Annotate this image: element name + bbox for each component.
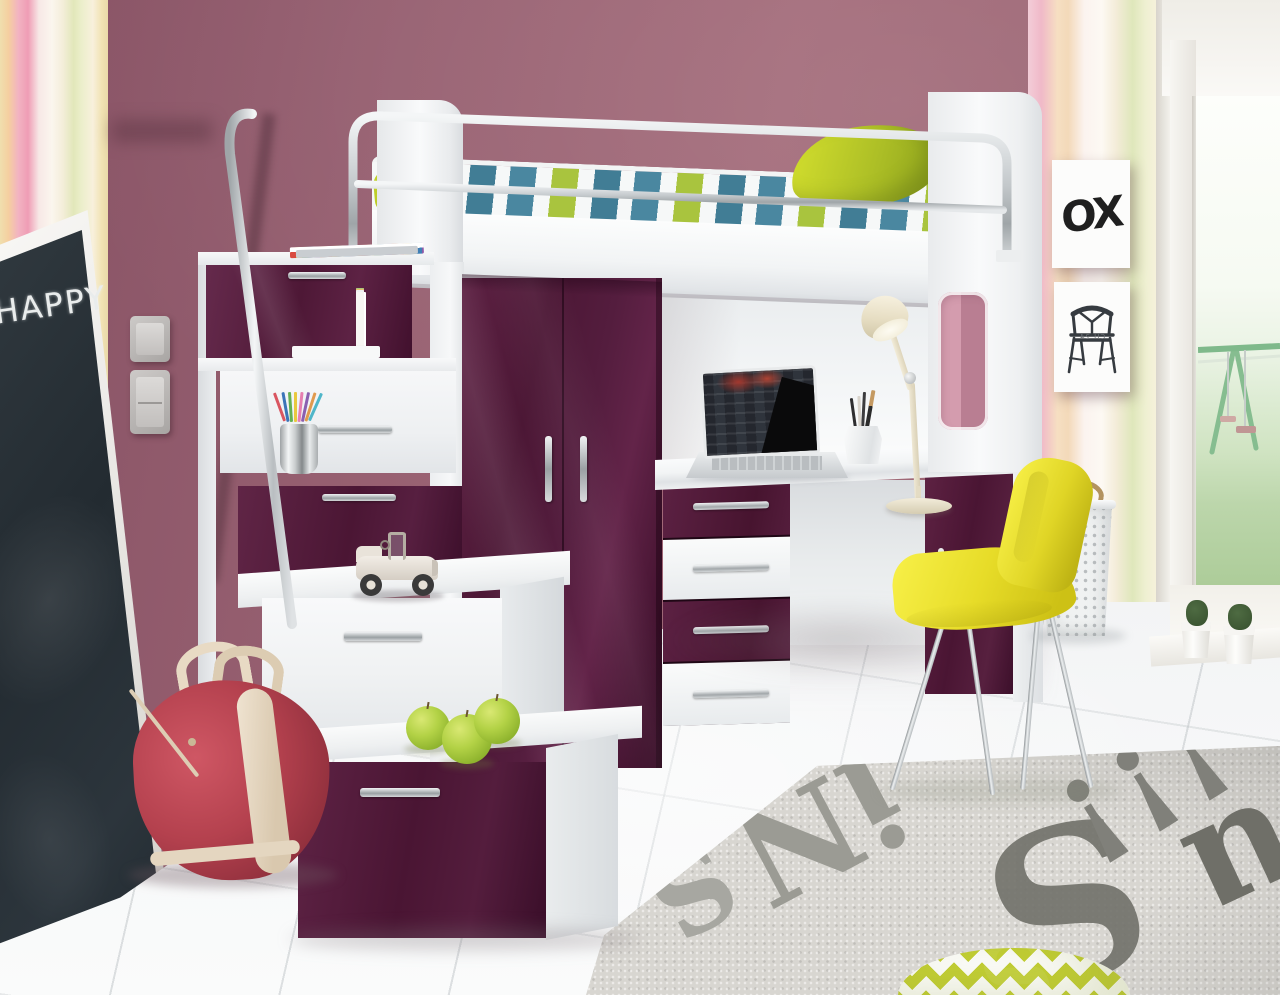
chair-legs (1069, 338, 1115, 372)
drawer-handle (360, 788, 440, 797)
light-switch-top (130, 316, 170, 362)
swing-a-frame (1212, 348, 1256, 452)
chair-wishbone-y (1078, 311, 1106, 334)
green-apple (474, 698, 520, 744)
guard-rail-upper (353, 116, 1007, 270)
drawer-handle (322, 494, 396, 501)
desk-lamp-base (886, 498, 952, 514)
panel-cutout-window (938, 292, 988, 430)
garden-swing-set (1198, 300, 1280, 480)
chair-poster-caption: CH 24 (1079, 333, 1105, 341)
red-duffel-bag (128, 648, 343, 893)
wishbone-chair-poster: CH 24 (1054, 282, 1130, 392)
wardrobe-handle-left (545, 436, 552, 502)
rail-mount (996, 250, 1022, 262)
lamp-joint (904, 372, 916, 384)
cactus-plant (1228, 604, 1252, 630)
wardrobe-handle-right (580, 436, 587, 502)
drawer-handle (344, 632, 422, 641)
swing-top-bar (1198, 346, 1280, 350)
laptop-screen (700, 365, 820, 459)
light-switch-bottom (130, 370, 170, 434)
drawer-handle (318, 426, 392, 433)
laptop-keys (712, 456, 822, 470)
swing-seat (1220, 416, 1236, 422)
ox-poster-text: OX (1060, 186, 1123, 242)
toy-car-steering-wheel (380, 540, 390, 550)
chair-shadow (880, 778, 1120, 804)
kids-room-photo: HAPPY OX CH 24 (0, 0, 1280, 995)
plant-pot (1180, 622, 1212, 658)
stairs-floor-shadow (290, 928, 640, 950)
plant-pot (1222, 626, 1256, 664)
toy-car-wheel (412, 574, 434, 596)
guard-rail-lower (358, 184, 1003, 210)
swing-seat (1236, 426, 1256, 433)
bag-zipper-pull (188, 738, 196, 746)
window-jamb (1156, 0, 1170, 690)
stairs-handrail (196, 92, 326, 637)
cactus-plant (1186, 600, 1208, 626)
toy-car-wheel (360, 574, 382, 596)
toy-car (348, 526, 448, 606)
ox-poster: OX (1052, 160, 1130, 268)
geometric-pen-holder (844, 426, 882, 464)
toy-car-windshield (388, 532, 406, 560)
stair-step-side (546, 734, 618, 940)
handrail-tube (229, 114, 292, 624)
toy-car-grill (432, 560, 438, 576)
